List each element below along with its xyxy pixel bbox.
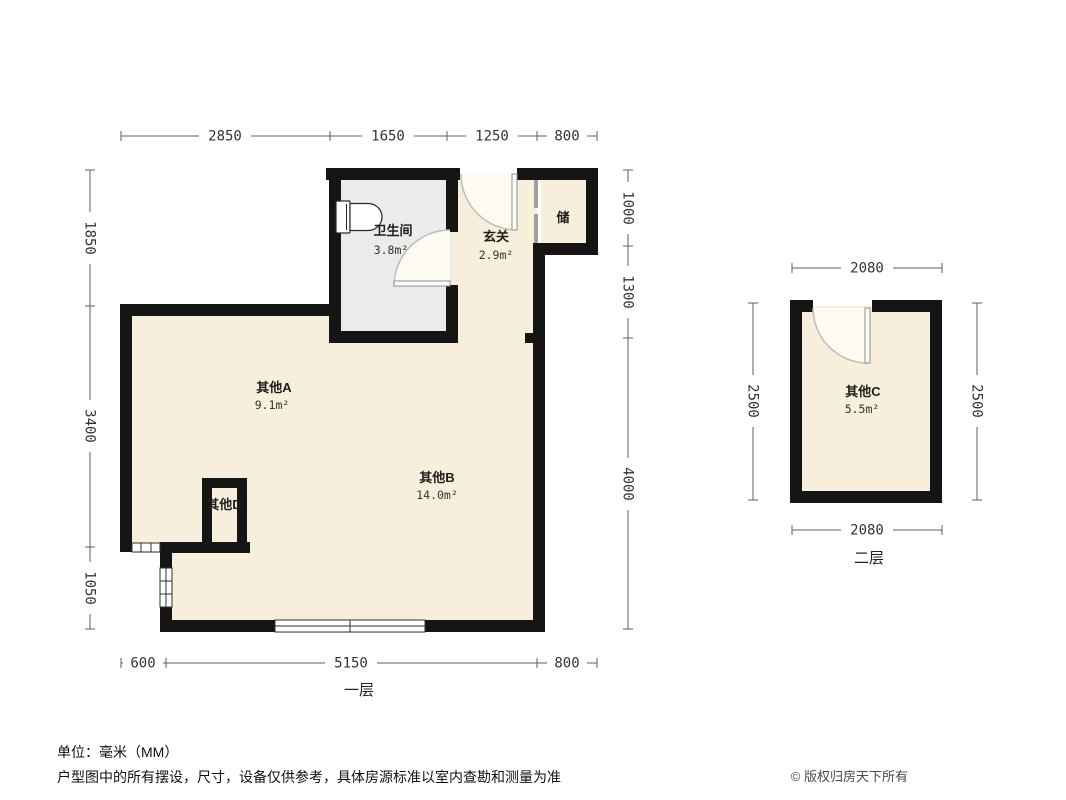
room-label-entry: 玄关 xyxy=(483,229,509,244)
svg-text:1300: 1300 xyxy=(620,275,636,309)
svg-text:800: 800 xyxy=(554,656,579,672)
disclaimer-text: 户型图中的所有摆设，尺寸，设备仅供参考，具体房源标准以室内查勘和测量为准 xyxy=(57,769,561,785)
dim-bottom-1: 600 xyxy=(123,654,163,672)
bottom-window xyxy=(275,620,425,632)
svg-text:2080: 2080 xyxy=(850,523,884,539)
room-label-storage: 储 xyxy=(555,210,569,225)
floor2-unit: 其他C 5.5m² xyxy=(790,300,942,503)
svg-text:1250: 1250 xyxy=(475,129,509,145)
svg-text:800: 800 xyxy=(554,129,579,145)
dim-top-2: 1650 xyxy=(362,127,414,145)
room-label-otherA: 其他A xyxy=(256,380,292,395)
svg-text:600: 600 xyxy=(130,656,155,672)
main-room-floor xyxy=(126,310,537,550)
floor2-caption: 二层 xyxy=(854,550,884,567)
room-area-otherC: 5.5m² xyxy=(845,402,880,416)
dim-top-4: 800 xyxy=(547,127,587,145)
dim-left-1: 1850 xyxy=(81,212,99,264)
dim-top-1: 2850 xyxy=(199,127,251,145)
unit-note: 单位：毫米（MM） xyxy=(57,744,178,760)
svg-text:1650: 1650 xyxy=(371,129,405,145)
svg-text:5150: 5150 xyxy=(334,656,368,672)
dim-bottom-3: 800 xyxy=(547,654,587,672)
svg-text:2500: 2500 xyxy=(745,384,761,418)
floorplan-image: 卫生间 3.8m² 玄关 2.9m² 储 其他A 9.1m² 其他B 14.0m… xyxy=(0,0,1066,800)
floor1-caption: 一层 xyxy=(344,682,374,699)
step-window xyxy=(132,543,160,552)
room-label-otherC: 其他C xyxy=(845,384,881,399)
dim-f2-top: 2080 xyxy=(841,259,893,277)
lower-room-floor xyxy=(166,550,537,626)
svg-text:4000: 4000 xyxy=(620,467,636,501)
room-area-otherA: 9.1m² xyxy=(255,398,290,412)
room-label-otherD: 其他D xyxy=(206,497,241,512)
room-area-entry: 2.9m² xyxy=(479,248,514,262)
svg-text:1000: 1000 xyxy=(620,191,636,225)
dim-top-3: 1250 xyxy=(466,127,518,145)
dim-f2-left: 2500 xyxy=(744,375,762,427)
dim-right-2: 1300 xyxy=(619,266,637,318)
dim-right-1: 1000 xyxy=(619,182,637,234)
svg-text:2850: 2850 xyxy=(208,129,242,145)
svg-text:2500: 2500 xyxy=(969,384,985,418)
copyright-text: © 版权归房天下所有 xyxy=(791,769,908,784)
left-window xyxy=(160,568,172,607)
room-area-otherB: 14.0m² xyxy=(416,488,458,502)
svg-text:3400: 3400 xyxy=(82,409,98,443)
svg-text:2080: 2080 xyxy=(850,261,884,277)
room-area-bathroom: 3.8m² xyxy=(374,243,409,257)
dim-f2-right: 2500 xyxy=(968,375,986,427)
floor1-floors xyxy=(126,174,591,626)
dim-bottom-2: 5150 xyxy=(325,654,377,672)
svg-text:1850: 1850 xyxy=(82,221,98,255)
dim-left-3: 1050 xyxy=(81,562,99,614)
svg-text:1050: 1050 xyxy=(82,571,98,605)
dim-left-2: 3400 xyxy=(81,400,99,452)
dim-right-3: 4000 xyxy=(619,458,637,510)
floorplan-page: 卫生间 3.8m² 玄关 2.9m² 储 其他A 9.1m² 其他B 14.0m… xyxy=(0,0,1066,800)
room-label-otherB: 其他B xyxy=(419,470,454,485)
dim-f2-bottom: 2080 xyxy=(841,521,893,539)
room-label-bathroom: 卫生间 xyxy=(373,223,412,238)
